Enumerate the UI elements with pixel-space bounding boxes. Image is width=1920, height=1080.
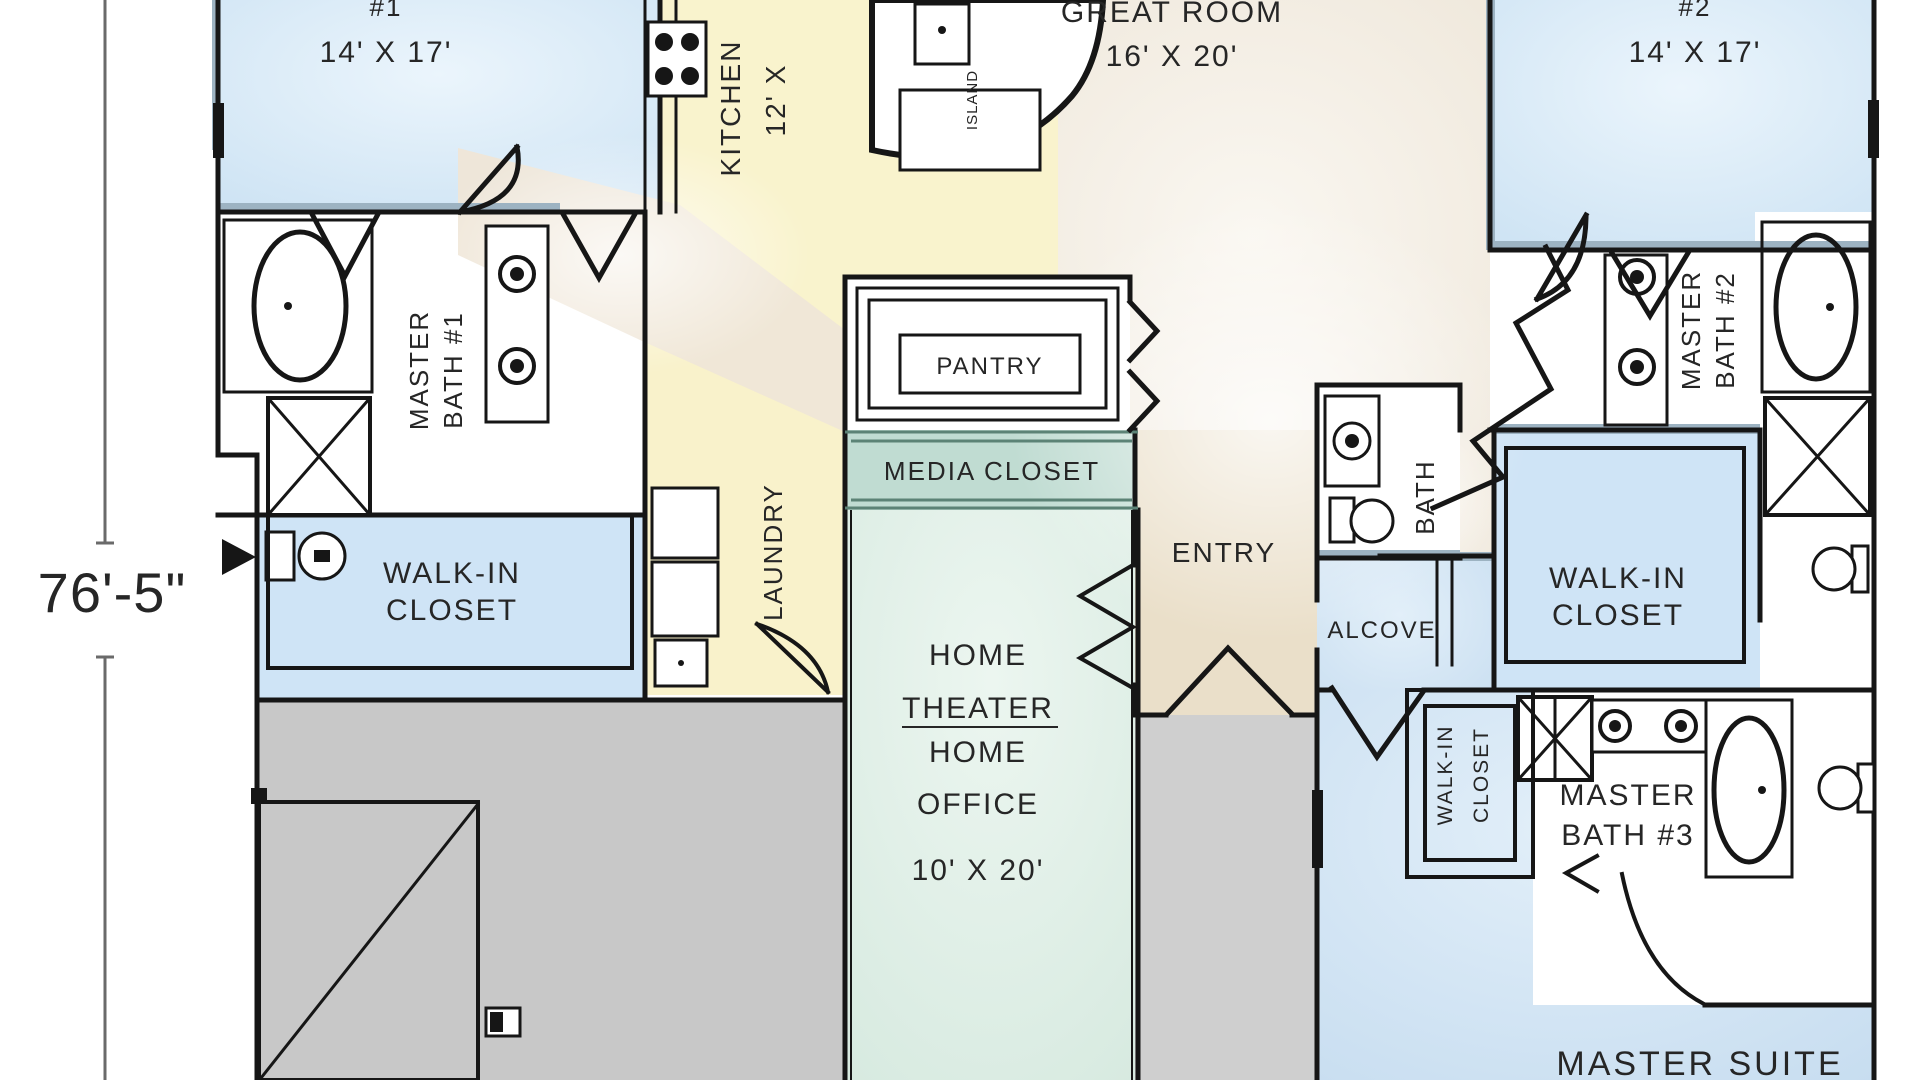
toilet2-bowl [1813,548,1855,590]
toilet3-bowl [1819,767,1861,809]
room-fills [218,0,1874,1080]
theater-line4: OFFICE [917,788,1039,821]
sink1-a-drain [510,267,524,281]
walkin-right-line2: CLOSET [1552,599,1684,632]
laundry-cabinet-knob [678,660,684,666]
laundry-label: LAUNDRY [758,483,788,621]
floor-plan-page: 76'-5" #1 14' X 17' #2 14' X 17' KITCHEN… [0,0,1920,1080]
sink3-b-drain [1675,720,1687,732]
cooktop [648,22,706,96]
burner-1 [655,33,673,51]
toilet1-tank [266,532,294,580]
alcove-label: ALCOVE [1327,617,1436,644]
dimension-label: 76'-5" [38,561,187,624]
master-bath1-line2: BATH #1 [438,311,468,429]
master-bath1-line1: MASTER [404,310,434,430]
dryer [652,562,718,636]
master-bath3-line1: MASTER [1559,779,1696,812]
garage-utility-dark [490,1012,503,1032]
tub2-drain [1826,303,1834,311]
bedroom1-number: #1 [370,0,403,22]
porch-floor [1135,715,1317,1080]
media-closet-label: MEDIA CLOSET [884,456,1100,486]
garage-floor [257,700,845,1080]
bedroom2-size: 14' X 17' [1629,36,1762,69]
island-sink-drain [938,26,946,34]
theater-line1: HOME [929,639,1027,672]
dimension-line [96,0,114,1080]
great-room-size: 16' X 20' [1106,40,1239,73]
laundry-fixtures [652,488,718,686]
great-room-label: GREAT ROOM [1061,0,1283,29]
dimension-arrow [222,539,256,575]
theater-size: 10' X 20' [912,854,1045,887]
sink2-b-drain [1630,360,1644,374]
walkin-left-line1: WALK-IN [383,557,521,590]
master-bath2-line1: MASTER [1676,270,1706,390]
master-bath2-line2: BATH #2 [1710,271,1740,389]
tub1-drain [284,302,292,310]
burner-3 [655,67,673,85]
entry-label: ENTRY [1172,537,1276,568]
window-jamb-right [1868,100,1879,158]
tub3-drain [1758,786,1766,794]
floor-plan-drawing: 76'-5" #1 14' X 17' #2 14' X 17' KITCHEN… [0,0,1920,1080]
sink3-a-drain [1609,720,1621,732]
bedroom2-number: #2 [1679,0,1712,22]
master-bath3-line2: BATH #3 [1561,819,1695,852]
burner-2 [681,33,699,51]
island-label: ISLAND [964,70,981,130]
bedroom1-size: 14' X 17' [320,36,453,69]
pantry-label: PANTRY [936,353,1043,380]
walkin-small-line2: CLOSET [1470,727,1493,823]
toilet1-flush [314,550,330,562]
sink1-b-drain [510,359,524,373]
master-suite-label: MASTER SUITE [1556,1045,1843,1080]
washer [652,488,718,558]
window-jamb-entry [1312,790,1323,868]
theater-line3: HOME [929,736,1027,769]
walkin-small-line1: WALK-IN [1434,725,1457,826]
garage-corner-tick [251,788,267,804]
powder-sink-drain [1345,434,1359,448]
burner-4 [681,67,699,85]
bath-label: BATH [1410,459,1440,534]
walkin-right-floor [1494,430,1760,690]
theater-line2: THEATER [902,692,1054,725]
kitchen-label: KITCHEN [715,40,746,177]
powder-toilet-bowl [1351,500,1393,542]
window-jamb-left [213,103,224,158]
kitchen-size: 12' X [760,64,791,137]
walkin-right-line1: WALK-IN [1549,562,1687,595]
walkin-left-line2: CLOSET [386,594,518,627]
